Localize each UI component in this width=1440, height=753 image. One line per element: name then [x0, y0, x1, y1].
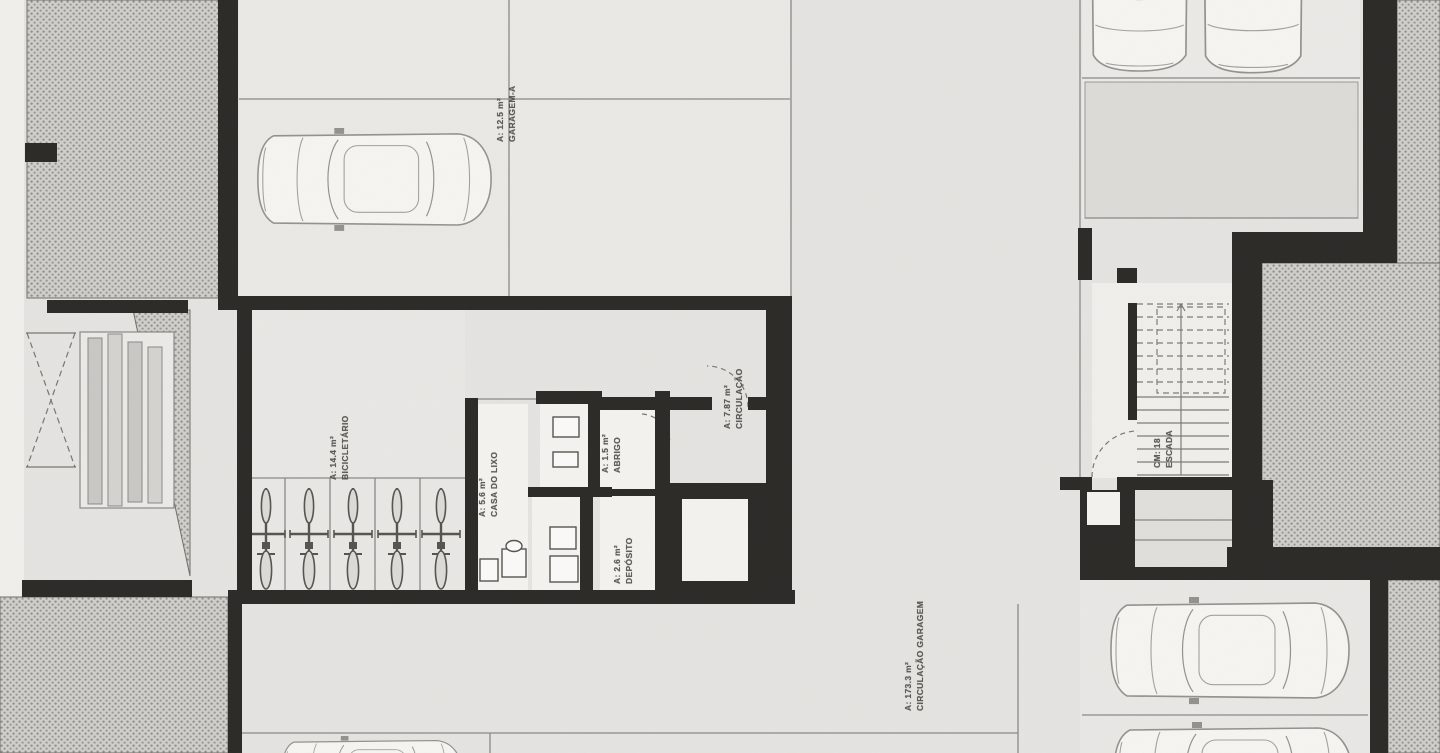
scan-noise-overlay	[0, 0, 1440, 753]
room-label-circulacao: A: 7.87 m² CIRCULAÇÃO	[721, 368, 745, 429]
room-name: BICICLETÁRIO	[339, 415, 351, 480]
room-name: CASA DO LIXO	[488, 452, 500, 517]
room-label-abrigo: A: 1.5 m² ABRIGO	[599, 434, 623, 473]
room-area: A: 12.5 m²	[494, 85, 506, 142]
room-area: A: 173.3 m²	[902, 601, 914, 711]
room-area: A: 1.5 m²	[599, 434, 611, 473]
room-name: DEPÓSITO	[623, 537, 635, 584]
floor-plan-canvas	[0, 0, 1440, 753]
room-area: A: 2.6 m²	[611, 537, 623, 584]
room-name: CIRCULAÇÃO GARAGEM	[914, 601, 926, 711]
room-area: A: 5.6 m²	[476, 452, 488, 517]
room-area: A: 14.4 m²	[327, 415, 339, 480]
room-name: ABRIGO	[611, 434, 623, 473]
room-label-circulacao-garagem: A: 173.3 m² CIRCULAÇÃO GARAGEM	[902, 601, 926, 711]
room-name: ESCADA	[1163, 430, 1175, 468]
room-label-deposito: A: 2.6 m² DEPÓSITO	[611, 537, 635, 584]
room-area: A: 7.87 m²	[721, 368, 733, 429]
room-label-escada: CM: 18 ESCADA	[1151, 430, 1175, 468]
room-name: GARAGEM-A	[506, 85, 518, 142]
room-name: CIRCULAÇÃO	[733, 368, 745, 429]
room-label-casa-do-lixo: A: 5.6 m² CASA DO LIXO	[476, 452, 500, 517]
room-label-bicicletario: A: 14.4 m² BICICLETÁRIO	[327, 415, 351, 480]
floor-plan-page: A: 12.5 m² GARAGEM-A A: 14.4 m² BICICLET…	[0, 0, 1440, 753]
room-area: CM: 18	[1151, 430, 1163, 468]
room-label-garagem: A: 12.5 m² GARAGEM-A	[494, 85, 518, 142]
